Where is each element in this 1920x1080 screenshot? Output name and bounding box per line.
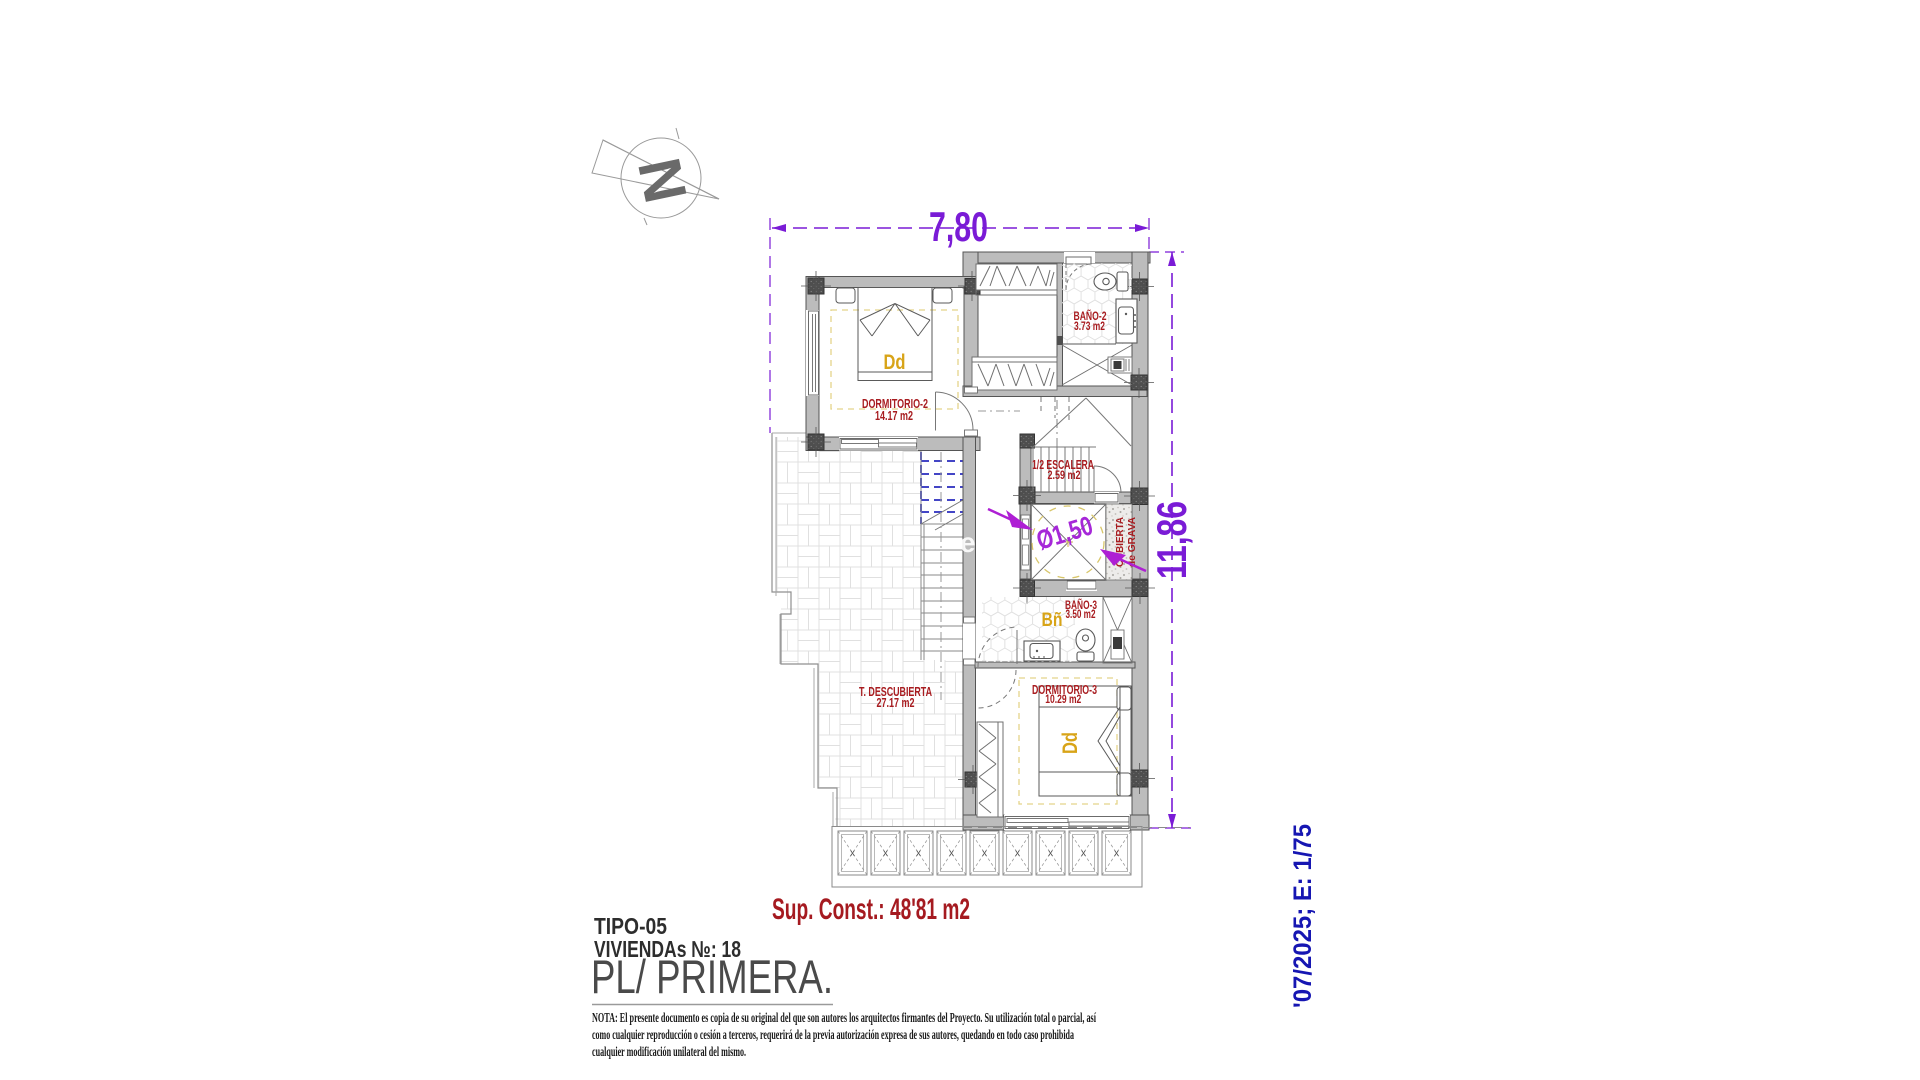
svg-text:x: x bbox=[949, 848, 954, 859]
svg-text:11,86: 11,86 bbox=[1148, 501, 1195, 579]
svg-text:x: x bbox=[883, 848, 888, 859]
svg-text:N: N bbox=[625, 152, 700, 208]
svg-text:10.29 m2: 10.29 m2 bbox=[1045, 692, 1081, 706]
svg-text:x: x bbox=[1114, 848, 1119, 859]
svg-text:x: x bbox=[1048, 848, 1053, 859]
svg-text:x: x bbox=[916, 848, 921, 859]
svg-text:Dd: Dd bbox=[884, 351, 906, 374]
svg-text:Dd: Dd bbox=[1059, 732, 1082, 754]
svg-text:NOTA: El presente documento es: NOTA: El presente documento es copia de … bbox=[592, 1011, 1097, 1026]
svg-text:x: x bbox=[1015, 848, 1020, 859]
svg-text:3.50 m2: 3.50 m2 bbox=[1066, 609, 1096, 621]
svg-text:3.73 m2: 3.73 m2 bbox=[1074, 321, 1105, 333]
svg-text:2.59 m2: 2.59 m2 bbox=[1048, 470, 1081, 482]
svg-text:de GRAVA: de GRAVA bbox=[1127, 517, 1138, 567]
svg-text:x: x bbox=[1081, 848, 1086, 859]
svg-text:x: x bbox=[982, 848, 987, 859]
svg-text:Bñ: Bñ bbox=[1042, 610, 1063, 631]
svg-text:como cualquier reproducción o: como cualquier reproducción o cesión a t… bbox=[592, 1028, 1074, 1043]
svg-text:'07/2025; E: 1/75: '07/2025; E: 1/75 bbox=[1289, 824, 1317, 1008]
svg-text:Sup. Const.: 48'81 m2: Sup. Const.: 48'81 m2 bbox=[772, 893, 970, 926]
svg-text:cualquier modificación unilate: cualquier modificación unilateral del mi… bbox=[592, 1045, 746, 1060]
svg-text:PL/ PRIMERA.: PL/ PRIMERA. bbox=[591, 950, 833, 1003]
svg-text:14.17 m2: 14.17 m2 bbox=[875, 409, 913, 423]
svg-text:x: x bbox=[850, 848, 855, 859]
svg-text:7,80: 7,80 bbox=[929, 203, 988, 250]
svg-text:27.17 m2: 27.17 m2 bbox=[877, 696, 915, 710]
svg-text:e: e bbox=[960, 527, 976, 558]
